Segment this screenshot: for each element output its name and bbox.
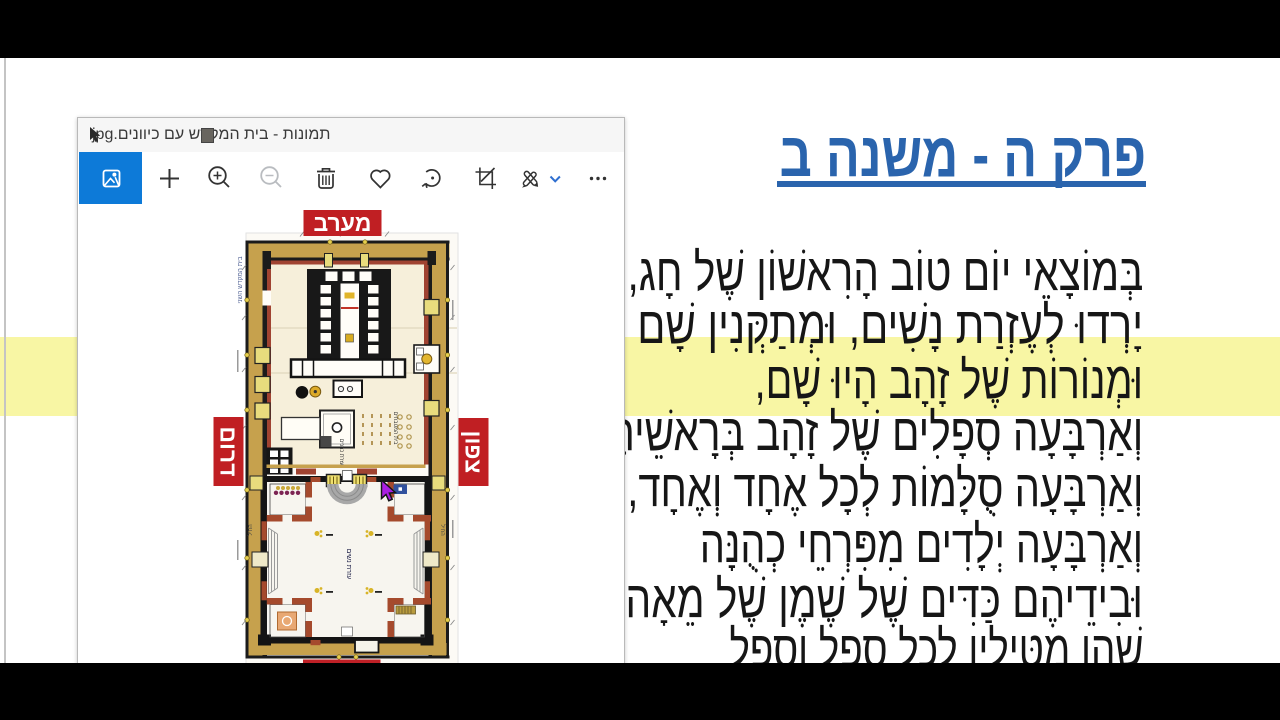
svg-text:דרום: דרום [216,426,242,476]
svg-text:מערב: מערב [314,210,372,236]
svg-text:צפון: צפון [461,431,487,474]
svg-text:החיל: החיל [247,524,254,536]
svg-text:בית המטבחים: בית המטבחים [392,412,398,445]
svg-text:החיל: החיל [439,524,446,536]
svg-text:בית המקדש השני: בית המקדש השני [237,256,244,303]
svg-text:עזרת נשים: עזרת נשים [345,549,352,580]
svg-text:עזרת כהנים: עזרת כהנים [338,439,344,466]
